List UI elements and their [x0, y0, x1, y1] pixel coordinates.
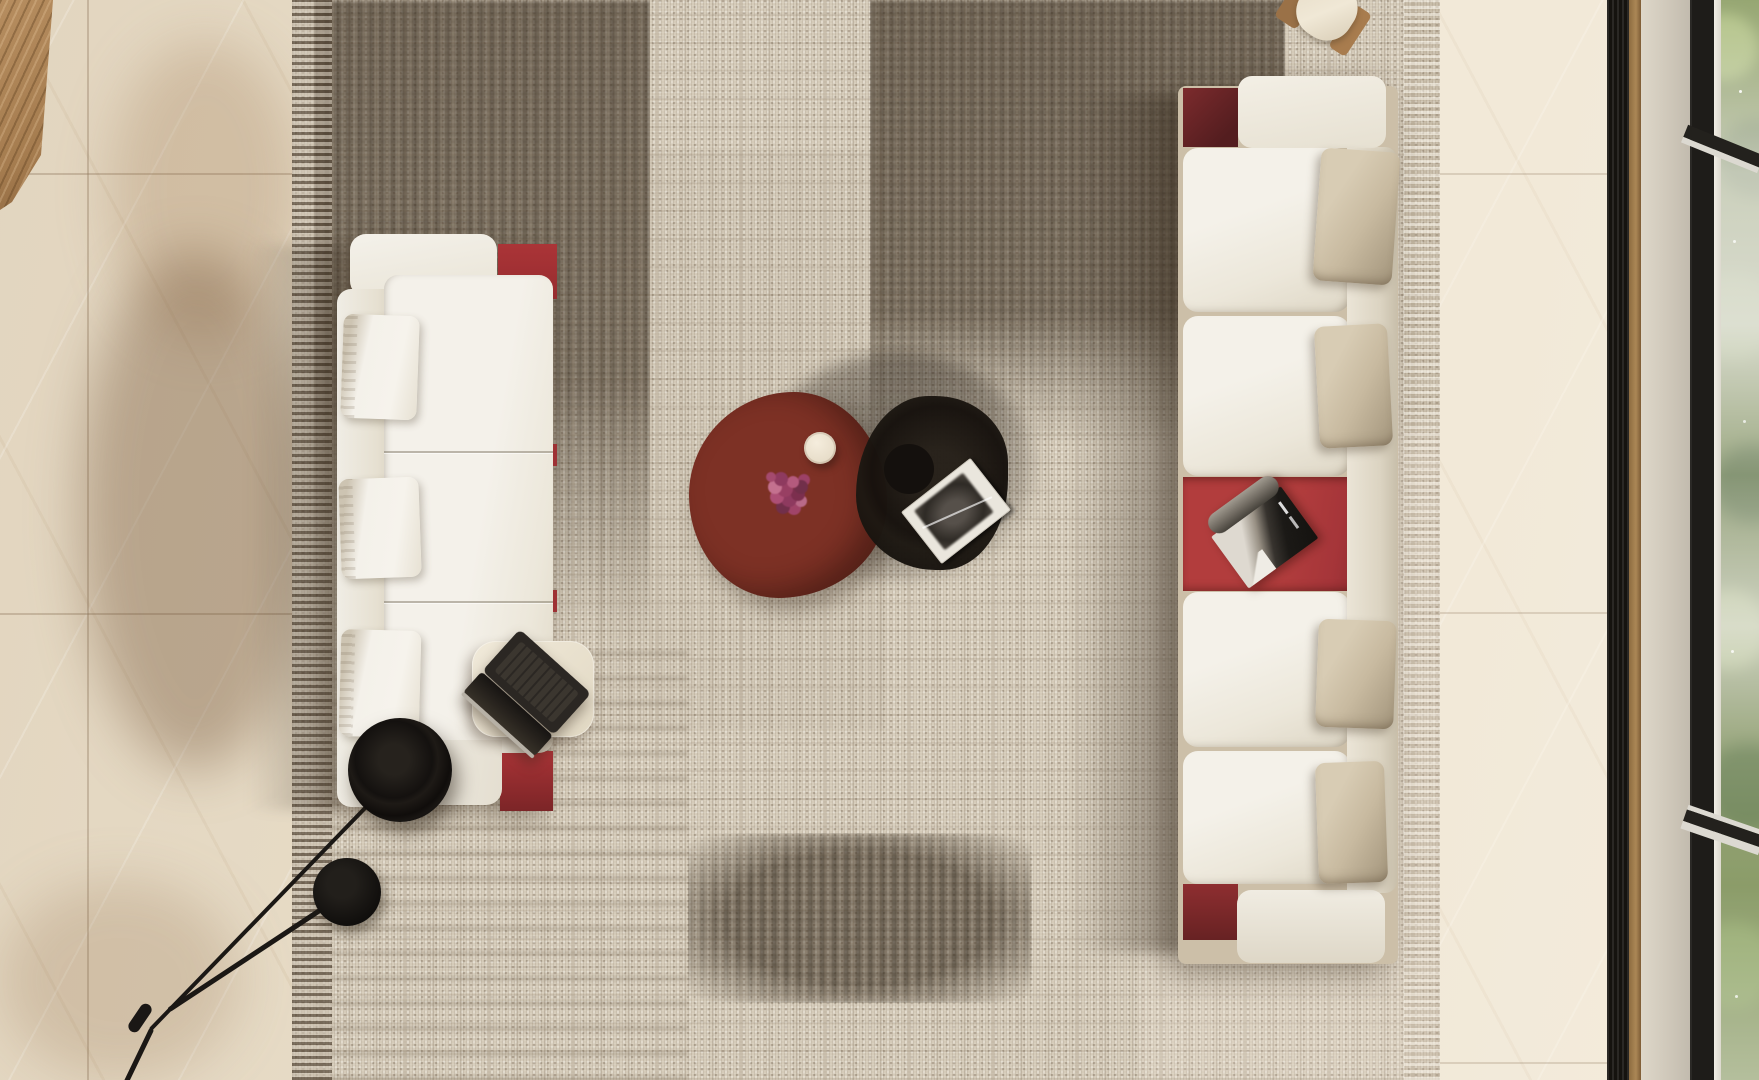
window-wood-sill	[1629, 0, 1641, 1080]
right-sofa-red-base-bottom	[1183, 884, 1238, 940]
window-frame	[1690, 0, 1714, 1080]
lamp-shadow-on-tile	[0, 880, 240, 1080]
seat-seam	[384, 451, 553, 453]
right-sofa-red-base-top	[1183, 88, 1238, 147]
black-side-table-handle	[884, 444, 934, 494]
seat-seam	[384, 601, 553, 603]
right-sofa-back-pillow	[1315, 761, 1388, 884]
floor-lamp-shade-disc	[348, 718, 452, 822]
window-wall-band	[1641, 0, 1690, 1080]
floor-lamp-counterweight-disc	[313, 858, 381, 926]
window-floor-track	[1607, 0, 1629, 1080]
right-sofa-back-pillow	[1314, 323, 1393, 449]
magenta-flower-cluster	[766, 472, 776, 482]
left-sofa-cast-shadow	[248, 245, 340, 810]
right-sofa-cast-shadow	[1072, 95, 1184, 953]
left-sofa-back-pillow	[338, 477, 421, 580]
left-sofa-red-base-bottom	[500, 751, 553, 811]
glass-light-specks	[1739, 90, 1742, 93]
right-sofa-back-pillow	[1312, 147, 1400, 285]
window-light-on-floor	[1440, 0, 1610, 1080]
right-sofa-back-pillow	[1315, 619, 1397, 730]
right-sofa-armrest	[1237, 890, 1385, 963]
right-sofa-armrest	[1238, 76, 1386, 148]
lounge-top-view-scene	[0, 0, 1759, 1080]
white-candle	[804, 432, 836, 464]
window-mullion-vertical	[1714, 0, 1721, 1080]
left-sofa-back-pillow	[340, 314, 420, 421]
